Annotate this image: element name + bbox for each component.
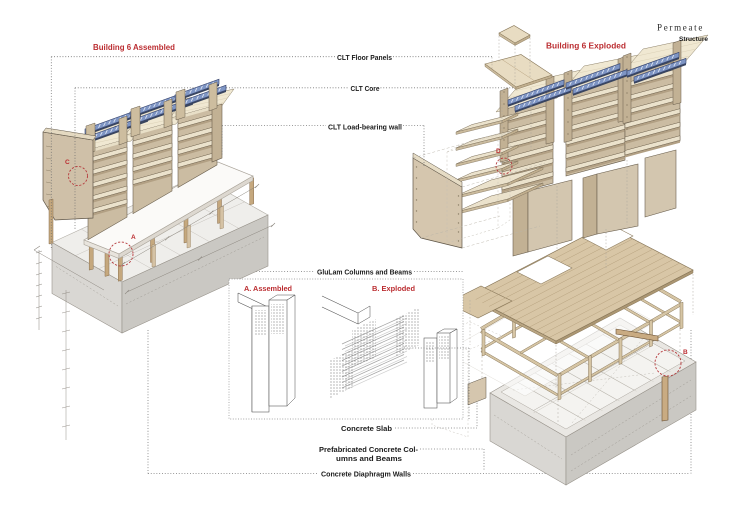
svg-text:Building 6 Assembled: Building 6 Assembled xyxy=(93,42,175,52)
svg-text:CLT Floor Panels: CLT Floor Panels xyxy=(337,55,392,62)
svg-text:CLT Load-bearing wall: CLT Load-bearing wall xyxy=(328,125,402,132)
svg-text:C: C xyxy=(65,159,70,166)
svg-text:B: B xyxy=(683,349,688,356)
svg-text:Building 6 Exploded: Building 6 Exploded xyxy=(546,41,626,51)
svg-text:Prefabricated Concrete Col-: Prefabricated Concrete Col- xyxy=(319,447,419,454)
svg-text:B. Exploded: B. Exploded xyxy=(372,286,415,293)
svg-text:D: D xyxy=(496,148,501,155)
svg-text:umns and Beams: umns and Beams xyxy=(336,456,402,463)
svg-text:Concrete Diaphragm Walls: Concrete Diaphragm Walls xyxy=(321,472,411,479)
svg-text:A: A xyxy=(131,234,136,241)
svg-text:Concrete Slab: Concrete Slab xyxy=(341,426,392,433)
svg-text:GluLam Columns and Beams: GluLam Columns and Beams xyxy=(317,270,412,277)
svg-text:A. Assembled: A. Assembled xyxy=(244,286,292,293)
svg-text:Permeate: Permeate xyxy=(657,23,704,33)
svg-text:CLT Core: CLT Core xyxy=(351,86,380,93)
svg-text:Structure: Structure xyxy=(679,36,708,43)
